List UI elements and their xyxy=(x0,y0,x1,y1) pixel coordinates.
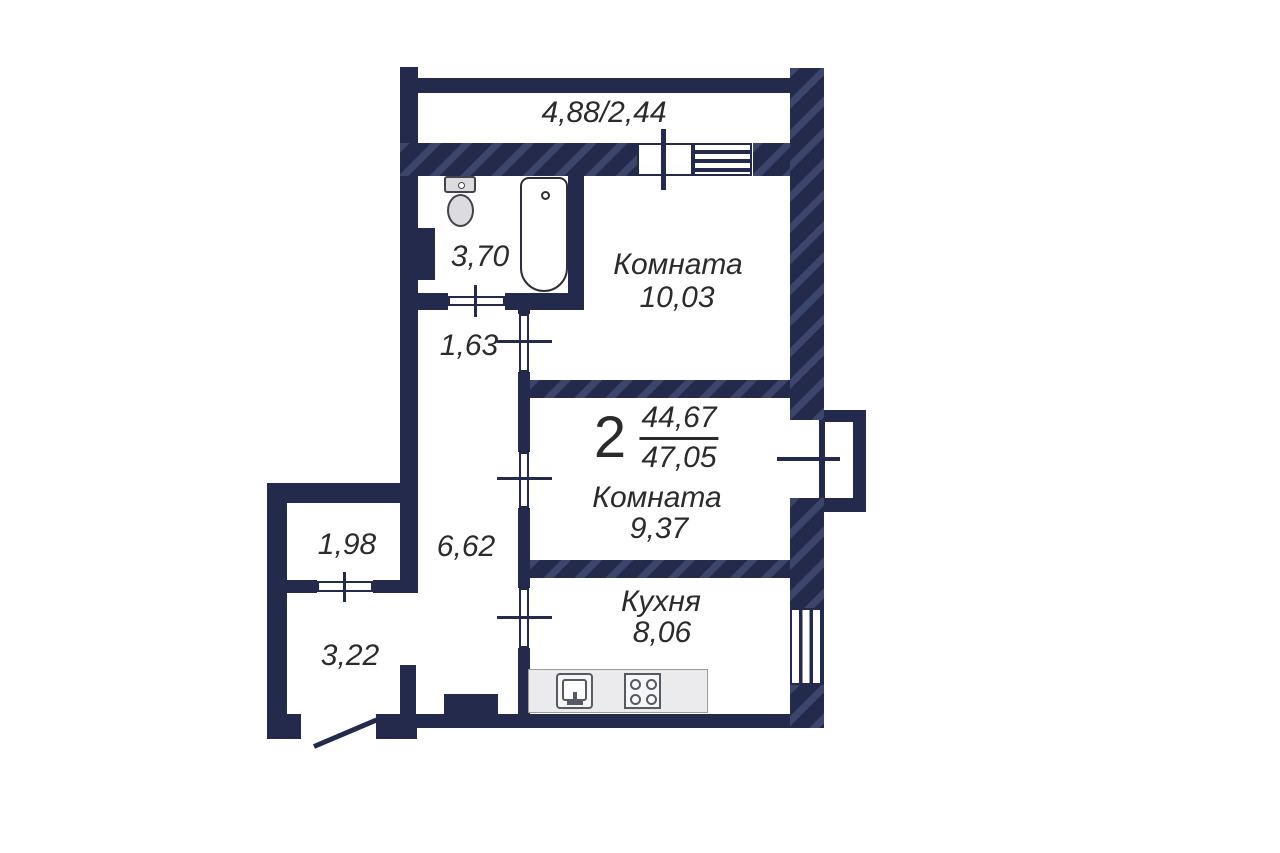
room-middle-door-icon xyxy=(519,452,529,508)
bay-window-bottom-wall xyxy=(824,498,866,512)
kitchen-counter xyxy=(528,669,708,713)
wall-bathroom-bottom-right xyxy=(505,293,584,310)
toilet-icon xyxy=(444,176,476,193)
sink-icon xyxy=(556,673,593,709)
bathroom-door-tick xyxy=(474,285,477,317)
wall-bottom-step xyxy=(444,694,498,714)
wall-bathroom-bottom-left xyxy=(400,293,448,310)
kitchen-name-label: Кухня xyxy=(621,587,701,617)
wall-corridor-right-b xyxy=(518,372,530,452)
bathroom-area-label: 3,70 xyxy=(451,242,509,272)
wall-band-under-balcony-right xyxy=(753,143,790,176)
wall-bathroom-right xyxy=(568,176,584,310)
entry-door-icon xyxy=(313,718,378,749)
wall-entryhall-right xyxy=(400,665,416,714)
apartment-total-area: 47,05 xyxy=(639,440,718,473)
wall-storage-bottom-a xyxy=(287,580,317,593)
stove-icon xyxy=(624,673,661,709)
room-upper-name-label: Комната xyxy=(613,250,742,280)
apartment-rooms-count: 2 xyxy=(594,409,626,467)
wall-right-lower xyxy=(790,685,824,728)
wall-top xyxy=(418,78,790,93)
bay-window-right-wall xyxy=(853,410,866,512)
wall-corridor-right-c xyxy=(518,508,530,588)
wall-bottom-left-cap xyxy=(267,714,301,739)
room-upper-door-tick xyxy=(497,340,552,343)
wall-storage-top xyxy=(267,483,418,503)
balcony-window-tick xyxy=(661,129,666,190)
room-middle-door-tick xyxy=(497,477,552,480)
bathtub-icon xyxy=(520,177,568,292)
floor-plan: 4,88/2,44 3,70 Комната 10,03 1,63 2 44,6… xyxy=(0,0,1280,853)
wall-bathroom-pier xyxy=(418,228,435,280)
entry-hall-area-label: 3,22 xyxy=(321,641,379,671)
storage-area-label: 1,98 xyxy=(318,530,376,560)
wall-bottom-main xyxy=(417,714,824,728)
balcony-door-icon xyxy=(693,143,752,176)
vent-shaft-icon xyxy=(790,608,824,685)
wall-divider-room-kitchen xyxy=(530,560,790,578)
wall-divider-rooms xyxy=(530,380,790,398)
wall-right-middle xyxy=(790,498,824,608)
wall-storage-bottom-b xyxy=(373,580,418,593)
wall-outer-left-block xyxy=(267,483,287,739)
room-upper-area-label: 10,03 xyxy=(639,283,714,313)
kitchen-door-tick xyxy=(497,616,552,619)
wall-band-under-balcony-left xyxy=(400,143,637,176)
bay-window-icon xyxy=(777,457,840,461)
balcony-area-label: 4,88/2,44 xyxy=(541,98,666,128)
apartment-living-area: 44,67 xyxy=(639,403,718,440)
room-middle-area-label: 9,37 xyxy=(630,514,688,544)
room-middle-name-label: Комната xyxy=(592,483,721,513)
corridor-area-label: 6,62 xyxy=(437,532,495,562)
wall-entry-jamb xyxy=(376,714,417,739)
wall-right-upper xyxy=(790,68,824,420)
apartment-area-fraction: 44,67 47,05 xyxy=(639,403,718,473)
room-upper-door-icon xyxy=(519,314,529,372)
hall-upper-area-label: 1,63 xyxy=(440,331,498,361)
storage-door-tick xyxy=(343,572,346,602)
toilet-bowl-icon xyxy=(447,194,474,227)
kitchen-area-label: 8,06 xyxy=(633,618,691,648)
